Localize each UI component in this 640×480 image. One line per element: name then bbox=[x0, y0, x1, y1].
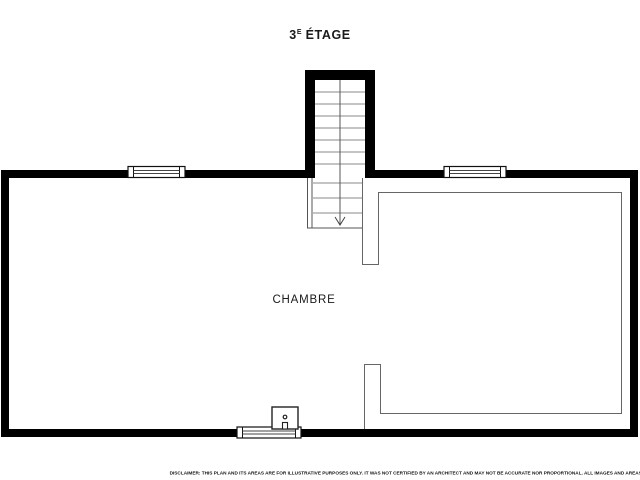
disclaimer-text: DISCLAIMER: THIS PLAN AND ITS AREAS ARE … bbox=[170, 471, 471, 476]
floor-plan-drawing bbox=[0, 0, 640, 480]
room-label-chambre: CHAMBRE bbox=[272, 294, 335, 306]
fixture-notch bbox=[283, 423, 288, 430]
staircase bbox=[313, 92, 365, 213]
floor-plan-page: 3E ÉTAGE bbox=[0, 0, 640, 480]
staircase-lower-walls bbox=[307, 80, 362, 228]
window-top-left bbox=[128, 167, 185, 178]
stair-right-wall bbox=[365, 70, 375, 178]
interior-thin-lines bbox=[362, 178, 622, 429]
window-frame bbox=[444, 167, 506, 178]
left-wall bbox=[1, 170, 9, 437]
bottom-wall bbox=[1, 429, 638, 437]
window-frame bbox=[128, 167, 185, 178]
bottom-wall-fixture bbox=[272, 407, 298, 429]
stair-top-wall bbox=[305, 70, 375, 80]
stair-left-wall bbox=[305, 70, 315, 178]
window-top-right bbox=[444, 167, 506, 178]
right-wall bbox=[630, 170, 638, 437]
